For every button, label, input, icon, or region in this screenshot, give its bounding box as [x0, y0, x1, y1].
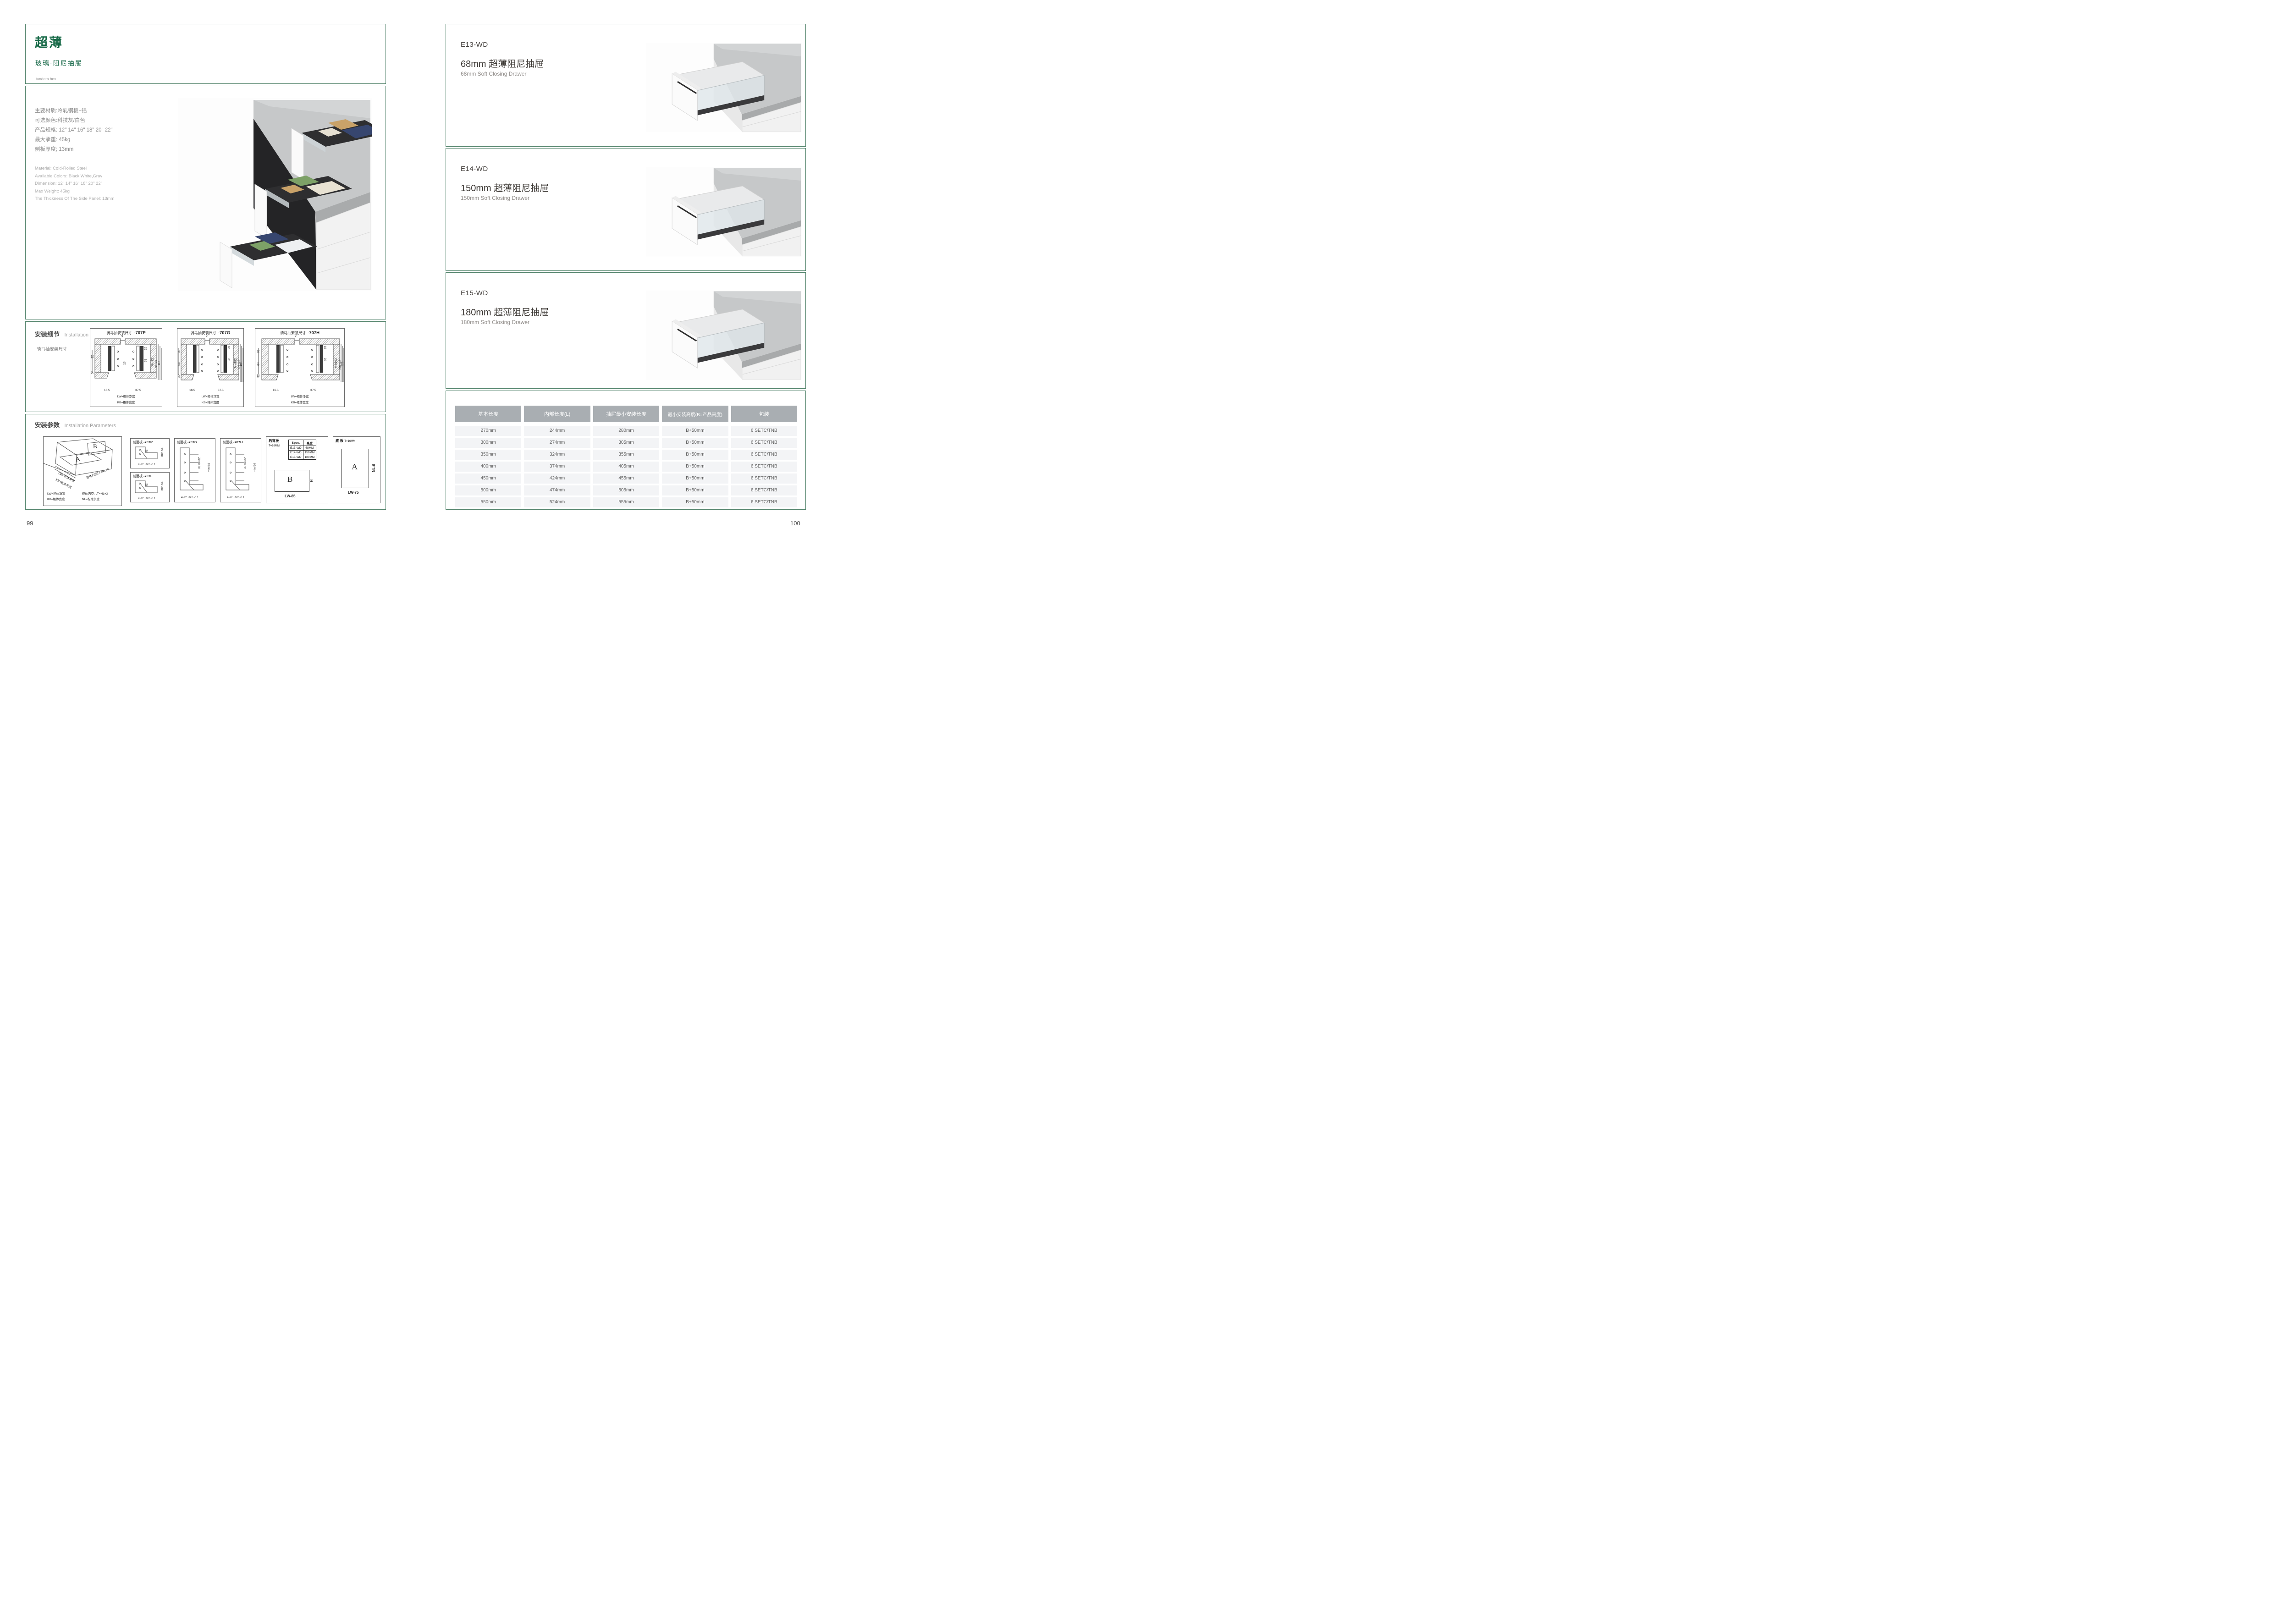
back-panel-title: 后背板	[269, 439, 279, 443]
page-subtitle: 玻璃·阻尼抽屉	[35, 59, 83, 68]
table-cell: 270mm	[455, 426, 521, 436]
spec-list-cn: 主要材质:冷轧钢板+铝 可选颜色:科技灰/白色 产品规格: 12" 14" 16…	[35, 106, 113, 154]
spec-th: Spec.	[289, 440, 303, 446]
installation-parameters-box: 安装参数 Installation Parameters B A LW=柜体净宽…	[25, 414, 386, 510]
installation-parameters-title-en: Installation Parameters	[64, 423, 116, 429]
back-panel-thickness: T=16MM	[269, 445, 280, 447]
product-title-en: 150mm Soft Closing Drawer	[461, 195, 529, 201]
panel-title: 底 板 T=16MM	[336, 438, 355, 443]
installation-parameters-header: 安装参数 Installation Parameters	[35, 420, 116, 429]
panel-title: 后背板 T=16MM	[269, 438, 280, 447]
dim-label: 32	[324, 358, 327, 361]
table-cell: B+50mm	[662, 497, 728, 507]
dim-label: KB=柜体宽度	[255, 402, 344, 405]
dim-label: 32	[145, 450, 149, 453]
front-panel-707L: 前面板 -707L min 54 32 2-ø2 +0.2 -0.1	[130, 472, 170, 502]
dim-label: 20	[228, 346, 231, 349]
bottom-panel-thickness: T=16MM	[344, 440, 355, 443]
panel-sketch	[178, 446, 205, 492]
dim-label: LW-85	[285, 495, 295, 498]
product-section-e14: E14-WD 150mm 超薄阻尼抽屉 150mm Soft Closing D…	[446, 148, 806, 271]
technical-drawing-707H: 骑马抽安装尺寸-707H 9 20 32 32 64 32 Min192 201…	[255, 328, 345, 407]
panel-title: 前面板 -707G	[177, 440, 197, 445]
spec-line: 可选颜色:科技灰/白色	[35, 116, 113, 126]
technical-drawing-707G: 骑马抽安装尺寸-707G 9 20 32 32 64 32 Min162 171…	[177, 328, 244, 407]
table-cell: 355mm	[593, 450, 659, 460]
spec-line: Material: Cold-Rolled Steel	[35, 165, 114, 173]
panel-code: -707P	[143, 440, 153, 444]
panel-sketch	[133, 445, 159, 461]
product-photo-illustration	[178, 98, 372, 291]
catalog-spread: 超薄 玻璃·阻尼抽屉 tandem box 主要材质:冷轧钢板+铝 可选颜色:科…	[0, 0, 830, 541]
drawing-title: 骑马抽安装尺寸-707G	[177, 330, 243, 336]
drawing-title: 骑马抽安装尺寸-707H	[255, 330, 344, 336]
table-cell: 424mm	[524, 473, 590, 484]
panel-title: 前面板 -707P	[133, 440, 153, 445]
table-row: 550mm524mm555mmB+50mm6 SETC/TNB	[455, 497, 797, 507]
dim-label: H	[310, 479, 314, 482]
dim-label: 64	[178, 363, 181, 366]
dim-label: NL-6	[372, 464, 376, 472]
cabinet-label-b: B	[93, 443, 97, 449]
spec-th: 高度	[303, 440, 316, 446]
dim-label: 16	[123, 362, 127, 365]
table-cell: 6 SETC/TNB	[731, 462, 797, 472]
drawing-title: 骑马抽安装尺寸-707P	[90, 330, 162, 336]
dim-label: 64	[257, 363, 260, 366]
dim-label: 32 64 32	[244, 457, 247, 469]
table-cell: 244mm	[524, 426, 590, 436]
installation-details-subtitle: 骑马抽安装尺寸	[37, 346, 67, 352]
drawing-sketch	[255, 336, 344, 387]
dim-label: Min82	[152, 358, 155, 366]
table-cell: 374mm	[524, 462, 590, 472]
dim-label: 9	[206, 335, 208, 338]
table-header-cell: 内部长度(L)	[524, 406, 590, 422]
table-cell: 474mm	[524, 485, 590, 495]
table-cell: 6 SETC/TNB	[731, 485, 797, 495]
table-cell: 555mm	[593, 497, 659, 507]
table-cell: B+50mm	[662, 485, 728, 495]
dim-label: 225	[342, 362, 345, 367]
dim-label: 4-ø2 +0.2 -0.1	[181, 496, 198, 499]
table-cell: 300mm	[455, 438, 521, 448]
spec-line: Max Weight: 45kg	[35, 188, 114, 196]
table-cell: 524mm	[524, 497, 590, 507]
table-cell: 500mm	[455, 485, 521, 495]
spec-td: 180MM	[303, 455, 316, 460]
dim-label: 2-ø2 +0.2 -0.1	[138, 497, 155, 500]
product-title-cn: 150mm 超薄阻尼抽屉	[461, 181, 549, 194]
dim-label: 16.5	[273, 389, 279, 392]
dim-label: LW=柜体净宽	[90, 396, 162, 399]
drawing-title-text: 骑马抽安装尺寸	[106, 331, 132, 335]
panel-title-cn: 前面板	[133, 441, 143, 444]
spec-line: 主要材质:冷轧钢板+铝	[35, 106, 113, 116]
table-cell: 455mm	[593, 473, 659, 484]
cabinet-3d-sketch	[44, 437, 121, 481]
dim-label: LW=柜体净宽	[255, 396, 344, 399]
front-panel-707P: 前面板 -707P min 54 32 2-ø2 +0.2 -0.1	[130, 438, 170, 468]
installation-details-title-cn: 安装细节	[35, 331, 60, 338]
bottom-panel-diagram: 底 板 T=16MM A NL-6 LW-75	[333, 436, 380, 503]
table-cell: 550mm	[455, 497, 521, 507]
table-row: 350mm324mm355mmB+50mm6 SETC/TNB	[455, 450, 797, 460]
product-title-en: 180mm Soft Closing Drawer	[461, 319, 529, 325]
dim-label: 32	[91, 355, 94, 358]
spec-line: Available Colors: Black,White,Gray	[35, 173, 114, 181]
cabinet-legend-4: NL=标准长度	[82, 498, 99, 501]
front-panel-707G: 前面板 -707G 32 64 32 min 54 4-ø2 +0.2 -0.1	[174, 438, 215, 502]
product-title-cn: 180mm 超薄阻尼抽屉	[461, 305, 549, 318]
table-cell: B+50mm	[662, 450, 728, 460]
dim-label: 20	[144, 347, 148, 350]
table-cell: 505mm	[593, 485, 659, 495]
dim-label: 32	[257, 374, 260, 378]
drawing-sketch	[177, 336, 243, 387]
model-code: E14-WD	[461, 165, 488, 173]
dim-label: 37.5	[218, 389, 224, 392]
table-row: 500mm474mm505mmB+50mm6 SETC/TNB	[455, 485, 797, 495]
table-cell: 450mm	[455, 473, 521, 484]
panel-title-cn: 前面板	[177, 441, 187, 444]
table-cell: B+50mm	[662, 438, 728, 448]
dim-label: min 54	[161, 447, 165, 457]
bottom-panel-title: 底 板	[336, 439, 343, 443]
dim-label: LW-75	[348, 491, 358, 495]
dim-label: 32	[178, 350, 181, 353]
dim-label: 9	[295, 335, 297, 338]
cabinet-legend-2: 柜体内空: LT=NL+3	[82, 493, 108, 496]
table-header-cell: 抽屉最小安装长度	[593, 406, 659, 422]
table-cell: 6 SETC/TNB	[731, 450, 797, 460]
spec-line: 产品规格: 12" 14" 16" 18" 20" 22"	[35, 126, 113, 135]
back-panel-label: B	[287, 475, 292, 483]
drawing-code: -707G	[218, 330, 230, 336]
model-code: E15-WD	[461, 289, 488, 297]
spec-line: 侧板厚度; 13mm	[35, 145, 113, 154]
left-content-box: 主要材质:冷轧钢板+铝 可选颜色:科技灰/白色 产品规格: 12" 14" 16…	[25, 86, 386, 319]
table-cell: 405mm	[593, 462, 659, 472]
panel-title: 前面板 -707L	[133, 474, 153, 479]
dim-label: 37.5	[135, 389, 141, 392]
cabinet-3d-diagram: B A LW=柜体净宽 KB=柜体宽度 柜体内空LT=NL+3 LW=柜体净宽 …	[43, 436, 122, 506]
dim-label: 16.5	[104, 389, 110, 392]
dim-label: 20	[324, 346, 327, 349]
installation-details-box: 安装细节 Installation Details 骑马抽安装尺寸 骑马抽安装尺…	[25, 321, 386, 412]
spec-table-body: 270mm244mm280mmB+50mm6 SETC/TNB300mm274m…	[455, 426, 797, 509]
table-cell: B+50mm	[662, 462, 728, 472]
table-cell: 274mm	[524, 438, 590, 448]
dim-label: LW=柜体净宽	[177, 396, 243, 399]
table-cell: B+50mm	[662, 426, 728, 436]
dim-label: Min192	[335, 358, 338, 368]
dim-label: KB=柜体宽度	[177, 402, 243, 405]
drawer-photo-illustration	[646, 290, 802, 380]
dim-label: 2-ø2 +0.2 -0.1	[138, 463, 155, 466]
drawer-photo-illustration	[646, 167, 802, 257]
cabinet-legend-1: LW=柜体净宽	[47, 493, 65, 496]
dim-label: 32	[178, 374, 181, 378]
dim-label: min 54	[161, 481, 165, 490]
dim-label: 195	[240, 362, 243, 367]
dim-label: KB=柜体宽度	[90, 402, 162, 405]
spec-td: E15-WD	[289, 455, 303, 460]
dim-label: min 54	[208, 463, 211, 472]
spec-td: 68MM	[303, 446, 316, 451]
table-cell: 324mm	[524, 450, 590, 460]
back-panel-spec-table: Spec. 高度 E13-WD 68MM E14-WD 150MM E15-WD…	[288, 440, 316, 460]
panel-title: 前面板 -707H	[223, 440, 242, 445]
table-cell: 350mm	[455, 450, 521, 460]
table-header-cell: 最小安装高度(B=产品高度)	[662, 406, 728, 422]
technical-drawing-707P: 骑马抽安装尺寸-707P 9 20 32 32 54 16 Min82 91.5…	[90, 328, 162, 407]
panel-code: -707L	[143, 474, 153, 478]
table-cell: 400mm	[455, 462, 521, 472]
dim-label: 9	[121, 335, 123, 338]
spec-td: 150MM	[303, 451, 316, 455]
panel-sketch	[224, 446, 251, 492]
drawer-photo-illustration	[646, 43, 802, 132]
left-title-box: 超薄 玻璃·阻尼抽屉 tandem box	[25, 24, 386, 84]
spec-line: The Thickness Of The Side Panel: 13mm	[35, 195, 114, 203]
dim-label: min 54	[254, 463, 257, 472]
table-cell: 6 SETC/TNB	[731, 473, 797, 484]
back-panel-diagram: 后背板 T=16MM Spec. 高度 E13-WD 68MM E14-WD 1…	[266, 436, 328, 503]
panel-code: -707G	[187, 440, 197, 444]
table-row: 450mm424mm455mmB+50mm6 SETC/TNB	[455, 473, 797, 484]
table-cell: 6 SETC/TNB	[731, 438, 797, 448]
dim-label: 32	[145, 484, 149, 487]
table-cell: 305mm	[593, 438, 659, 448]
page-title: 超薄	[35, 33, 63, 51]
page-tagline: tandem box	[36, 77, 56, 81]
dim-label: 16.5	[189, 389, 195, 392]
drawing-title-text: 骑马抽安装尺寸	[280, 331, 306, 335]
dim-label: 32	[144, 359, 148, 362]
dim-label: 32	[228, 358, 231, 361]
dim-label: 37.5	[310, 389, 316, 392]
cabinet-legend-3: KB=柜体宽度	[47, 498, 65, 501]
dim-label: 4-ø2 +0.2 -0.1	[227, 496, 244, 499]
table-row: 400mm374mm405mmB+50mm6 SETC/TNB	[455, 462, 797, 472]
product-section-e13: E13-WD 68mm 超薄阻尼抽屉 68mm Soft Closing Dra…	[446, 24, 806, 147]
product-section-e15: E15-WD 180mm 超薄阻尼抽屉 180mm Soft Closing D…	[446, 272, 806, 389]
spec-td: E13-WD	[289, 446, 303, 451]
table-cell: 6 SETC/TNB	[731, 426, 797, 436]
panel-title-cn: 前面板	[133, 475, 143, 478]
panel-sketch	[133, 479, 159, 495]
spec-line: 最大承重: 45kg	[35, 135, 113, 145]
table-row: 300mm274mm305mmB+50mm6 SETC/TNB	[455, 438, 797, 448]
product-title-cn: 68mm 超薄阻尼抽屉	[461, 56, 544, 70]
spec-td: E14-WD	[289, 451, 303, 455]
page-number-left: 99	[27, 520, 33, 527]
spec-line: Dimension: 12" 14" 16" 18" 20" 22"	[35, 180, 114, 188]
installation-parameters-title-cn: 安装参数	[35, 422, 60, 429]
page-number-right: 100	[790, 520, 800, 527]
drawing-code: -707P	[134, 330, 145, 336]
dim-label: 32	[257, 350, 260, 353]
product-title-en: 68mm Soft Closing Drawer	[461, 71, 526, 77]
front-panel-707H: 前面板 -707H 32 64 32 min 54 4-ø2 +0.2 -0.1	[220, 438, 261, 502]
drawing-title-text: 骑马抽安装尺寸	[191, 331, 216, 335]
spec-list-en: Material: Cold-Rolled Steel Available Co…	[35, 165, 114, 203]
panel-title-cn: 前面板	[223, 441, 232, 444]
dim-label: 113	[158, 361, 161, 365]
spec-table-box: 基本长度 内部长度(L) 抽屉最小安装长度 最小安装高度(B=产品高度) 包装 …	[446, 391, 806, 510]
dim-label: 32 64 32	[198, 457, 201, 469]
table-cell: B+50mm	[662, 473, 728, 484]
table-header-cell: 包装	[731, 406, 797, 422]
table-cell: 6 SETC/TNB	[731, 497, 797, 507]
model-code: E13-WD	[461, 41, 488, 49]
dim-label: Min162	[234, 358, 237, 368]
table-row: 270mm244mm280mmB+50mm6 SETC/TNB	[455, 426, 797, 436]
drawing-code: -707H	[308, 330, 320, 336]
bottom-panel-label: A	[352, 462, 358, 471]
table-cell: 280mm	[593, 426, 659, 436]
dim-label: 54	[91, 371, 94, 374]
table-header-cell: 基本长度	[455, 406, 521, 422]
spec-table-header: 基本长度 内部长度(L) 抽屉最小安装长度 最小安装高度(B=产品高度) 包装	[455, 406, 797, 422]
panel-code: -707H	[233, 440, 242, 444]
